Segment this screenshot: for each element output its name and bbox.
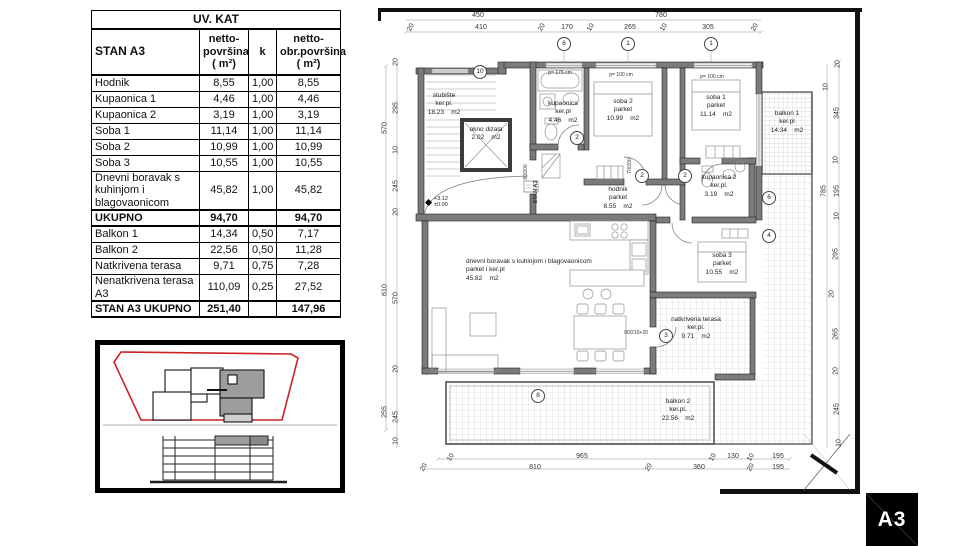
table-cell: 10,55 bbox=[200, 155, 249, 171]
reference-marker: 3 bbox=[659, 329, 673, 343]
table-cell: 1,00 bbox=[249, 123, 277, 139]
level-value-lower: ±0.00 bbox=[434, 202, 448, 208]
dimension-label: 10 bbox=[823, 83, 830, 91]
room-label: balkon 1 ker.pl 14.34 m2 bbox=[771, 110, 804, 135]
dimension-label: 245 bbox=[834, 403, 841, 415]
dimension-label: 90/210+20 bbox=[624, 330, 648, 336]
table-cell: 11,14 bbox=[277, 123, 341, 139]
table-cell: 22,56 bbox=[200, 242, 249, 258]
header-netto: netto- površina ( m²) bbox=[200, 29, 249, 75]
table-title: UV. KAT bbox=[92, 11, 341, 30]
dimension-label: 245 bbox=[393, 411, 400, 423]
table-cell: 45,82 bbox=[200, 171, 249, 210]
table-cell: 3,19 bbox=[200, 107, 249, 123]
room-label: stubište ker.pl. 18.23 m2 bbox=[428, 92, 461, 117]
dimension-label: 10 bbox=[659, 22, 669, 32]
dimension-label: 410 bbox=[475, 24, 487, 31]
apartment-entry-label: STAN A3 bbox=[533, 181, 539, 204]
table-row: Soba 310,551,0010,55 bbox=[92, 155, 341, 171]
dimension-label: 195 bbox=[772, 453, 784, 460]
table-cell: 10,99 bbox=[200, 139, 249, 155]
dimension-label: 20 bbox=[644, 462, 654, 472]
table-cell: Kupaonica 1 bbox=[92, 91, 200, 107]
dimension-label: 295 bbox=[833, 248, 840, 260]
table-cell: 110,09 bbox=[200, 274, 249, 301]
table-cell: 1,00 bbox=[249, 91, 277, 107]
dimension-label: 20 bbox=[829, 290, 836, 298]
table-cell: Balkon 2 bbox=[92, 242, 200, 258]
table-cell: Natkrivena terasa bbox=[92, 258, 200, 274]
room-label: balkon 2 ker.pl. 22.56 m2 bbox=[662, 398, 695, 423]
dimension-label: 10 bbox=[393, 437, 400, 445]
reference-marker: 2 bbox=[570, 131, 584, 145]
table-row: STAN A3 UKUPNO251,40147,96 bbox=[92, 301, 341, 317]
reference-marker: 10 bbox=[473, 65, 487, 79]
dimension-label: 20 bbox=[419, 462, 429, 472]
table-cell: 1,00 bbox=[249, 75, 277, 91]
table-cell: 14,34 bbox=[200, 226, 249, 242]
table-cell: 0,25 bbox=[249, 274, 277, 301]
dimension-label: 20 bbox=[393, 58, 400, 66]
table-cell: STAN A3 UKUPNO bbox=[92, 301, 200, 317]
dimension-label: 20 bbox=[746, 462, 756, 472]
table-cell: 4,46 bbox=[277, 91, 341, 107]
dimension-label: 130 bbox=[727, 453, 739, 460]
dimension-label: 80/200 bbox=[523, 164, 529, 179]
table-cell: 1,00 bbox=[249, 139, 277, 155]
dimension-label: 195 bbox=[772, 464, 784, 471]
dimension-label: 20 bbox=[537, 22, 547, 32]
table-cell: Kupaonica 2 bbox=[92, 107, 200, 123]
reference-marker: 2 bbox=[678, 169, 692, 183]
dimension-label: 20 bbox=[393, 365, 400, 373]
dimension-label: 195 bbox=[834, 185, 841, 197]
table-row: Kupaonica 23,191,003,19 bbox=[92, 107, 341, 123]
dimension-label: 785 bbox=[821, 185, 828, 197]
table-cell: 251,40 bbox=[200, 301, 249, 317]
dimension-label: 20 bbox=[835, 60, 842, 68]
table-cell: 9,71 bbox=[200, 258, 249, 274]
dimension-label: 10 bbox=[746, 452, 756, 462]
room-label: soba 2 parket 10.99 m2 bbox=[607, 98, 640, 123]
dimension-label: 345 bbox=[834, 107, 841, 119]
dimension-label: 570 bbox=[382, 122, 389, 134]
area-table: UV. KAT STAN A3 netto- površina ( m²) k … bbox=[91, 10, 341, 318]
reference-marker: 6 bbox=[557, 37, 571, 51]
table-cell: UKUPNO bbox=[92, 210, 200, 226]
reference-marker: 2 bbox=[635, 169, 649, 183]
table-cell: Soba 1 bbox=[92, 123, 200, 139]
table-cell: 0,75 bbox=[249, 258, 277, 274]
table-row: Soba 111,141,0011,14 bbox=[92, 123, 341, 139]
table-cell: 1,00 bbox=[249, 107, 277, 123]
dimension-label: 255 bbox=[382, 406, 389, 418]
table-cell: Soba 2 bbox=[92, 139, 200, 155]
table-row: Balkon 114,340,507,17 bbox=[92, 226, 341, 242]
reference-marker: 6 bbox=[762, 191, 776, 205]
header-k: k bbox=[249, 29, 277, 75]
header-netto-obr: netto- obr.površina ( m²) bbox=[277, 29, 341, 75]
table-cell: 45,82 bbox=[277, 171, 341, 210]
dimension-label: 450 bbox=[472, 12, 484, 19]
sheet-code-badge: A3 bbox=[866, 493, 918, 546]
dimension-label: 170 bbox=[561, 24, 573, 31]
dimension-label: 360 bbox=[693, 464, 705, 471]
plan-labels: stubište ker.pl. 18.23 m2okno dizala 2.0… bbox=[378, 8, 862, 540]
dimension-label: 570 bbox=[393, 292, 400, 304]
table-cell: 1,00 bbox=[249, 155, 277, 171]
dimension-label: 70/200 bbox=[627, 158, 633, 173]
dimension-label: 965 bbox=[576, 453, 588, 460]
table-row: Nenatkrivena terasa A3110,090,2527,52 bbox=[92, 274, 341, 301]
table-title-row: UV. KAT bbox=[92, 11, 341, 30]
dimension-label: p= 175 cm bbox=[548, 70, 572, 76]
dimension-label: p= 100 cm bbox=[700, 74, 724, 80]
table-cell: 0,50 bbox=[249, 242, 277, 258]
room-label: hodnik parket 8.55 m2 bbox=[604, 186, 633, 211]
drawing-sheet: { "table": { "title": "UV. KAT", "header… bbox=[0, 0, 960, 546]
room-label: dnevni boravak s kuhinjom i blagovaonico… bbox=[466, 258, 592, 283]
table-cell: Soba 3 bbox=[92, 155, 200, 171]
table-cell: 3,19 bbox=[277, 107, 341, 123]
level-marker: +3.12 ±0.00 bbox=[434, 196, 448, 209]
room-label: natkrivena terasa ker.pl. 9.71 m2 bbox=[671, 316, 721, 341]
room-label: kupaonica ker.pl 4.46 m2 bbox=[548, 100, 578, 125]
dimension-label: 10 bbox=[834, 212, 841, 220]
dimension-label: 10 bbox=[446, 452, 456, 462]
table-cell: 94,70 bbox=[200, 210, 249, 226]
table-cell: 10,99 bbox=[277, 139, 341, 155]
dimension-label: 245 bbox=[393, 180, 400, 192]
dimension-label: 265 bbox=[833, 328, 840, 340]
table-cell: 7,28 bbox=[277, 258, 341, 274]
table-row: Natkrivena terasa9,710,757,28 bbox=[92, 258, 341, 274]
room-label: okno dizala 2.02 m2 bbox=[470, 126, 503, 143]
dimension-label: 10 bbox=[393, 146, 400, 154]
table-row: Soba 210,991,0010,99 bbox=[92, 139, 341, 155]
table-row: Dnevni boravak s kuhinjom i blagovaonico… bbox=[92, 171, 341, 210]
table-row: Kupaonica 14,461,004,46 bbox=[92, 91, 341, 107]
dimension-label: 10 bbox=[833, 156, 840, 164]
table-cell: Dnevni boravak s kuhinjom i blagovaonico… bbox=[92, 171, 200, 210]
table-row: UKUPNO94,7094,70 bbox=[92, 210, 341, 226]
table-cell: 8,55 bbox=[277, 75, 341, 91]
table-cell: 7,17 bbox=[277, 226, 341, 242]
floor-plan: stubište ker.pl. 18.23 m2okno dizala 2.0… bbox=[378, 8, 862, 540]
dimension-label: 10 bbox=[586, 22, 596, 32]
table-row: Balkon 222,560,5011,28 bbox=[92, 242, 341, 258]
room-label: soba 1 parket 11.14 m2 bbox=[700, 94, 732, 119]
table-cell bbox=[249, 301, 277, 317]
table-cell: 4,46 bbox=[200, 91, 249, 107]
dimension-label: 20 bbox=[833, 367, 840, 375]
dimension-label: 610 bbox=[382, 284, 389, 296]
sheet-code-text: A3 bbox=[878, 508, 907, 532]
table-cell: 94,70 bbox=[277, 210, 341, 226]
reference-marker: 1 bbox=[704, 37, 718, 51]
table-cell: Nenatkrivena terasa A3 bbox=[92, 274, 200, 301]
header-apartment: STAN A3 bbox=[92, 29, 200, 75]
table-cell: 0,50 bbox=[249, 226, 277, 242]
dimension-label: 10 bbox=[836, 439, 843, 447]
room-label: soba 3 parket 10.55 m2 bbox=[706, 252, 739, 277]
reference-marker: 8 bbox=[531, 389, 545, 403]
room-label: kupaonica 2 ker.pl. 3.19 m2 bbox=[701, 174, 736, 199]
table-row: Hodnik8,551,008,55 bbox=[92, 75, 341, 91]
dimension-label: 20 bbox=[406, 22, 416, 32]
dimension-label: 265 bbox=[624, 24, 636, 31]
table-cell: Hodnik bbox=[92, 75, 200, 91]
reference-marker: 4 bbox=[762, 229, 776, 243]
table-cell: 11,28 bbox=[277, 242, 341, 258]
table-cell: 11,14 bbox=[200, 123, 249, 139]
table-cell: 1,00 bbox=[249, 171, 277, 210]
reference-marker: 1 bbox=[621, 37, 635, 51]
dimension-label: 810 bbox=[529, 464, 541, 471]
table-cell: 8,55 bbox=[200, 75, 249, 91]
dimension-label: 10 bbox=[708, 452, 718, 462]
site-plan-thumbnail bbox=[95, 340, 345, 493]
table-cell: 147,96 bbox=[277, 301, 341, 317]
table-header-row: STAN A3 netto- površina ( m²) k netto- o… bbox=[92, 29, 341, 75]
table-cell bbox=[249, 210, 277, 226]
dimension-label: p= 100 cm bbox=[609, 72, 633, 78]
table-cell: Balkon 1 bbox=[92, 226, 200, 242]
table-cell: 10,55 bbox=[277, 155, 341, 171]
dimension-label: 305 bbox=[702, 24, 714, 31]
dimension-label: 295 bbox=[393, 102, 400, 114]
dimension-label: 20 bbox=[393, 208, 400, 216]
table-cell: 27,52 bbox=[277, 274, 341, 301]
dimension-label: 20 bbox=[750, 22, 760, 32]
dimension-label: 780 bbox=[655, 12, 667, 19]
